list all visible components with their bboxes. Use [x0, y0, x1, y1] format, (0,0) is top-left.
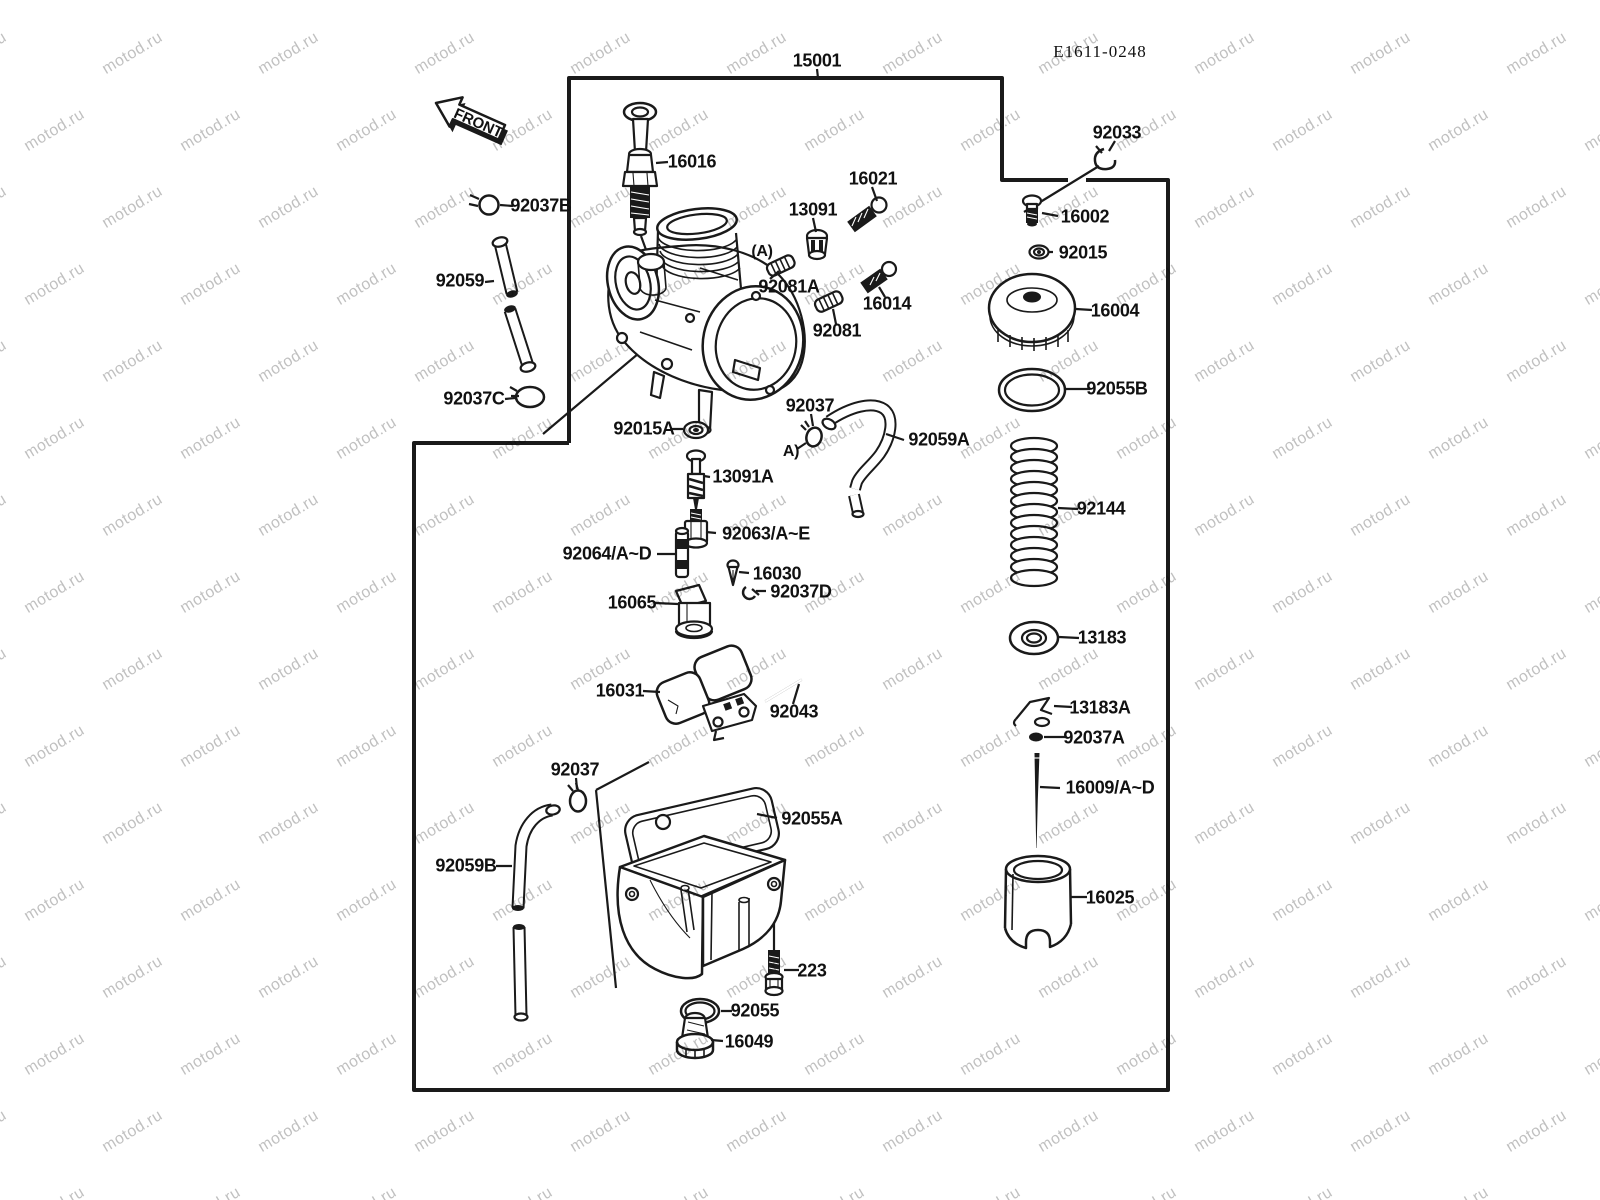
part-label-92144: 92144 — [1077, 499, 1126, 520]
part-92037B-clip-drawing — [469, 195, 499, 215]
part-label-92081: 92081 — [813, 321, 862, 342]
part-92037D-clip-drawing — [743, 587, 759, 599]
part-223-screw-drawing — [766, 950, 783, 995]
part-label-92055B: 92055B — [1086, 379, 1147, 400]
part-label-16016: 16016 — [668, 152, 717, 173]
part-label-92059A: 92059A — [908, 430, 969, 451]
part-label-92055A: 92055A — [781, 809, 842, 830]
part-label-92059B: 92059B — [435, 856, 496, 877]
part-label-16004: 16004 — [1091, 301, 1140, 322]
part-92015-drawing — [1030, 246, 1049, 259]
part-label-92055: 92055 — [731, 1001, 780, 1022]
part-label-13183: 13183 — [1078, 628, 1127, 649]
part-92033-clip-drawing — [1095, 146, 1115, 169]
part-label-92043: 92043 — [770, 702, 819, 723]
part-92059A-hose-drawing — [821, 405, 891, 517]
part-16025-slide-drawing — [1005, 856, 1071, 948]
ref-label-A-body: (A) — [751, 243, 772, 261]
part-label-92037B: 92037B — [510, 196, 571, 217]
part-label-92037C: 92037C — [443, 389, 504, 410]
part-label-16065: 16065 — [608, 593, 657, 614]
part-label-16031: 16031 — [596, 681, 645, 702]
part-label-92059: 92059 — [436, 271, 485, 292]
part-16065-holder-drawing — [676, 585, 712, 638]
front-arrow: FRONT — [428, 88, 513, 152]
part-label-16014: 16014 — [863, 294, 912, 315]
part-label-92033: 92033 — [1093, 123, 1142, 144]
part-label-16002: 16002 — [1061, 207, 1110, 228]
part-label-16009: 16009/A~D — [1066, 778, 1155, 799]
part-16016-drawing — [623, 103, 657, 235]
part-label-92037A: 92037A — [1063, 728, 1124, 749]
front-arrow-label: FRONT — [451, 105, 505, 142]
part-92144-spring-drawing — [1011, 438, 1057, 586]
part-label-92037-mid: 92037 — [786, 396, 835, 417]
part-16021-drawing — [851, 198, 887, 228]
part-label-92063: 92063/A~E — [722, 524, 810, 545]
part-92037C-clip-drawing — [510, 387, 544, 407]
part-label-13183A: 13183A — [1069, 698, 1130, 719]
part-label-223: 223 — [797, 961, 826, 982]
part-13091A-drawing — [687, 451, 705, 516]
part-92064-jet-drawing — [676, 528, 688, 577]
part-label-16025: 16025 — [1086, 888, 1135, 909]
part-label-92015: 92015 — [1059, 243, 1108, 264]
part-16004-cap-drawing — [989, 274, 1075, 351]
part-13091-drawing — [807, 230, 827, 259]
part-92059-tubes-drawing — [492, 236, 537, 374]
drawing-code-label: E1611-0248 — [1053, 42, 1146, 62]
part-label-92064: 92064/A~D — [563, 544, 652, 565]
part-label-15001: 15001 — [793, 51, 842, 72]
part-label-16021: 16021 — [849, 169, 898, 190]
part-13183A-clip-drawing — [1014, 698, 1052, 726]
part-label-92015A: 92015A — [613, 419, 674, 440]
part-16009-needle-drawing — [1035, 753, 1040, 848]
part-92059B-tube-drawing — [512, 804, 560, 1020]
part-label-92037-low: 92037 — [551, 760, 600, 781]
part-92037A-drawing — [1029, 733, 1043, 742]
part-label-16049: 16049 — [725, 1032, 774, 1053]
ref-label-A-mid: A) — [783, 443, 799, 461]
part-label-92037D: 92037D — [770, 582, 831, 603]
float-bowl-drawing — [618, 836, 785, 978]
carburetor-body-drawing — [600, 204, 814, 433]
part-label-92081A: 92081A — [758, 277, 819, 298]
part-label-13091A: 13091A — [712, 467, 773, 488]
part-13183-washer-drawing — [1010, 622, 1058, 654]
parts-diagram-page: FRONT — [0, 0, 1600, 1200]
part-16014-drawing — [864, 262, 896, 288]
part-label-13091: 13091 — [789, 200, 838, 221]
part-92015A-drawing — [684, 422, 708, 438]
part-16030-valve-drawing — [728, 561, 739, 586]
part-92055B-oring-drawing — [999, 369, 1065, 411]
part-16031-float-drawing — [653, 642, 756, 740]
